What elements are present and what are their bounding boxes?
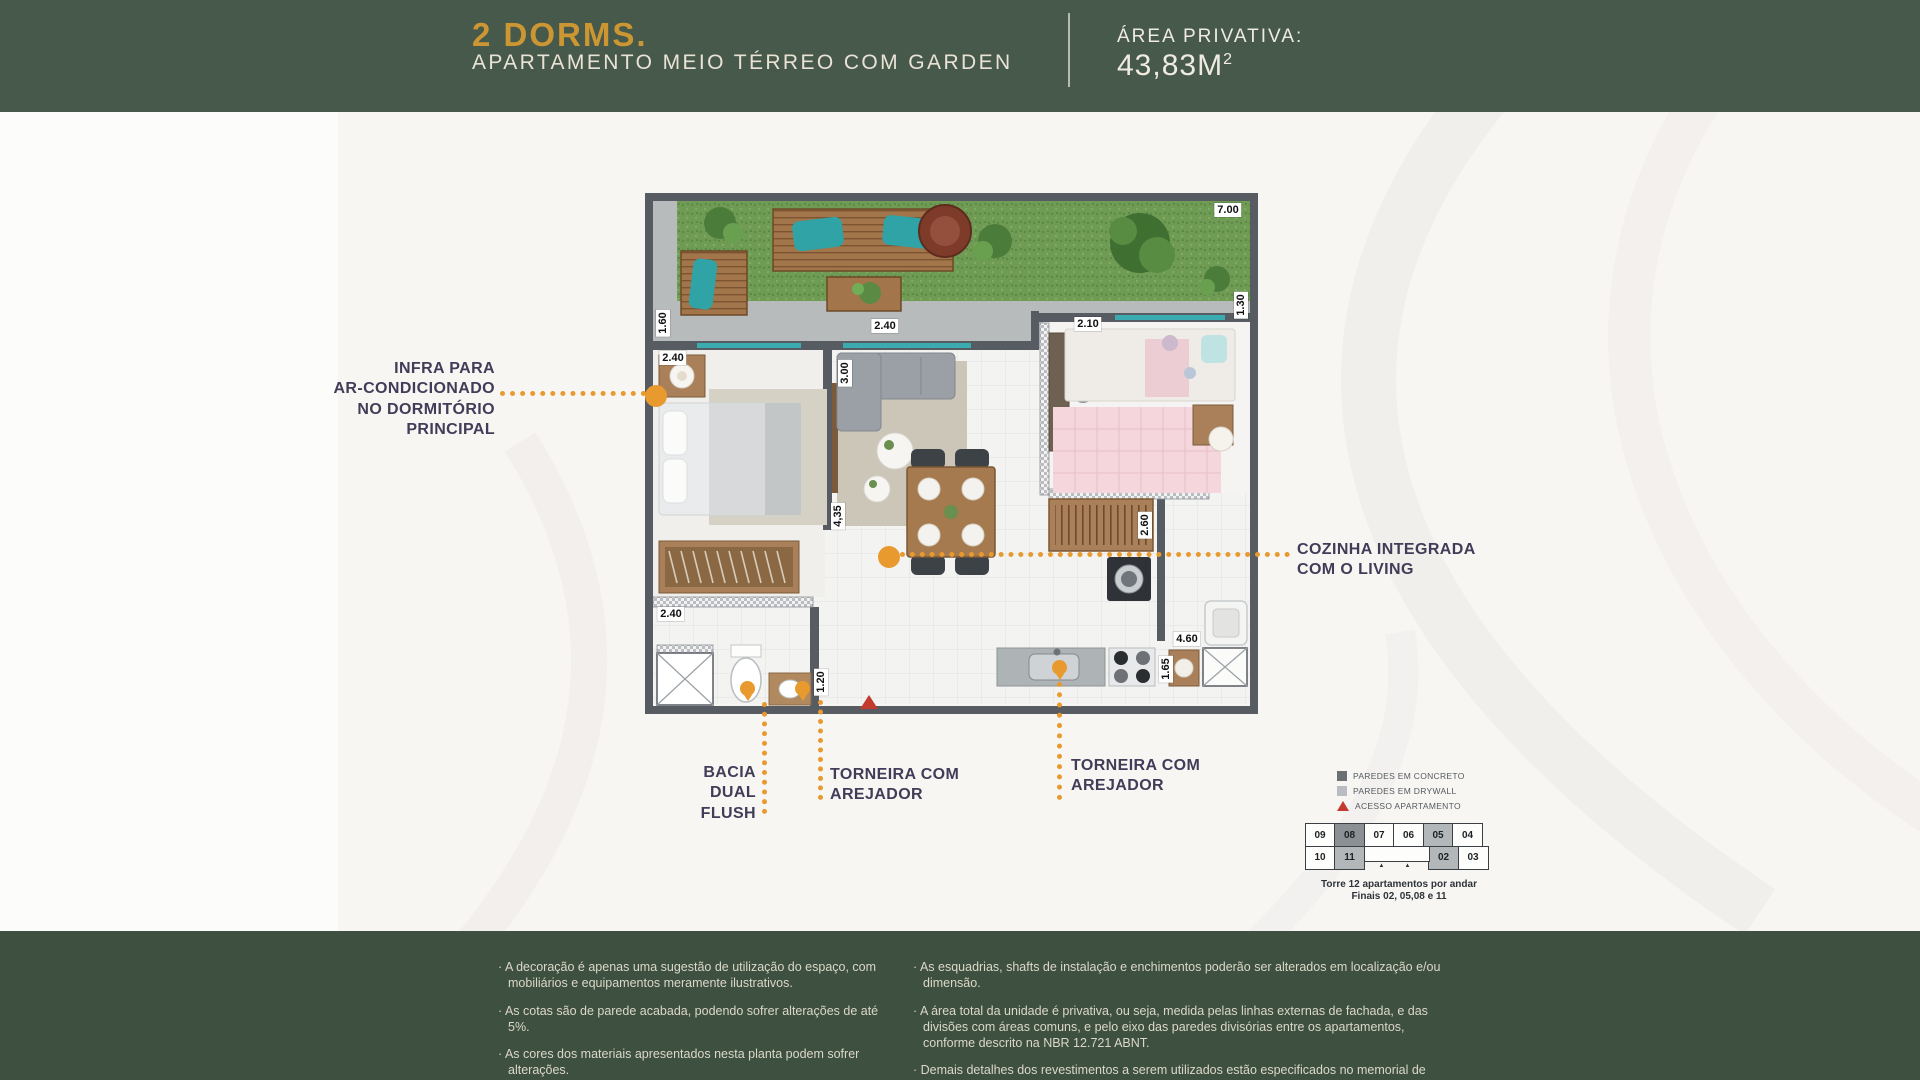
infra-dot [645,385,667,407]
keyplan-unit-07: 07 [1364,823,1395,847]
area-superscript: 2 [1223,51,1233,68]
bacia-pin [740,681,755,696]
callout-cozinha-integrada: COZINHA INTEGRADA COM O LIVING [1297,540,1476,581]
keyplan-unit-04: 04 [1452,823,1483,847]
keyplan-unit-02: 02 [1428,846,1459,870]
torneira-banho-pin [795,681,810,696]
keyplan-unit-10: 10 [1305,846,1336,870]
disclaimers-left-column: A decoração é apenas uma sugestão de uti… [498,959,890,1080]
keyplan-caption: Torre 12 apartamentos por andar Finais 0… [1306,879,1492,904]
drywall-swatch-icon [1337,786,1347,796]
legend-item: ACESSO APARTAMENTO [1337,798,1465,813]
infra-dotted-line [500,391,646,396]
callout-line: PRINCIPAL [285,420,495,440]
callout-line: COZINHA INTEGRADA [1297,540,1476,560]
callout-torneira-arejador-cozinha: TORNEIRA COM AREJADOR [1071,756,1200,797]
keyplan-access-triangle-icon: ▲ [1379,863,1385,869]
keyplan-caption-line1: Torre 12 apartamentos por andar [1306,879,1492,892]
private-area-label: ÁREA PRIVATIVA: [1117,26,1303,48]
legend-label: PAREDES EM DRYWALL [1353,786,1457,796]
disclaimers-right-column: As esquadrias, shafts de instalação e en… [913,959,1458,1080]
floorplan-graphic [645,193,1258,714]
wardrobe [659,541,799,593]
keyplan-caption-line2: Finais 02, 05,08 e 11 [1306,891,1492,904]
callout-line: TORNEIRA COM [830,765,959,785]
left-white-panel [0,112,338,931]
disclaimer-note: A decoração é apenas uma sugestão de uti… [498,959,890,992]
header-band: 2 DORMS. APARTAMENTO MEIO TÉRREO COM GAR… [0,0,1920,112]
callout-line: AREJADOR [1071,776,1200,796]
keyplan-bottom-row: 1011▲▲0203 [1306,847,1492,870]
concrete-swatch-icon [1337,771,1347,781]
disclaimer-note: As esquadrias, shafts de instalação e en… [913,959,1458,992]
legend-label: ACESSO APARTAMENTO [1355,801,1461,811]
page-subtitle: APARTAMENTO MEIO TÉRREO COM GARDEN [472,51,1013,75]
disclaimer-note: A área total da unidade é privativa, ou … [913,1003,1458,1052]
callout-line: AR-CONDICIONADO [285,379,495,399]
keyplan: 090807060504 1011▲▲0203 Torre 12 apartam… [1306,823,1492,904]
callout-bacia-dual-flush: BACIA DUAL FLUSH [656,763,756,824]
legend-item: PAREDES EM CONCRETO [1337,768,1465,783]
legend-item: PAREDES EM DRYWALL [1337,783,1465,798]
private-area-value: 43,83M2 [1117,49,1233,83]
keyplan-access-triangle-icon: ▲ [1405,863,1411,869]
callout-line: COM O LIVING [1297,560,1476,580]
slide: 2 DORMS. APARTAMENTO MEIO TÉRREO COM GAR… [0,0,1920,1080]
keyplan-unit-08: 08 [1334,823,1365,847]
callout-line: FLUSH [656,804,756,824]
callout-line: TORNEIRA COM [1071,756,1200,776]
callout-line: BACIA [656,763,756,783]
floorplan: 1.602.407.001.302.402.103.004,352.602.40… [645,193,1258,714]
cozinha-dot [878,546,900,568]
area-number: 43,83M [1117,49,1223,82]
bacia-dotted-line [762,702,767,814]
callout-line: AREJADOR [830,785,959,805]
torneira-cozinha-dotted-line [1057,682,1062,800]
page-title: 2 DORMS. [472,16,648,54]
keyplan-top-row: 090807060504 [1306,823,1492,847]
torneira-banho-dotted-line [818,700,823,800]
keyplan-unit-11: 11 [1334,846,1365,870]
footer-band: A decoração é apenas uma sugestão de uti… [0,931,1920,1080]
kids-bedroom [1049,329,1235,493]
cozinha-dotted-line [900,552,1290,557]
keyplan-unit-05: 05 [1423,823,1454,847]
keyplan-unit-09: 09 [1305,823,1336,847]
header-divider [1068,13,1070,87]
torneira-cozinha-pin [1052,660,1067,675]
legend: PAREDES EM CONCRETOPAREDES EM DRYWALLACE… [1337,768,1465,813]
disclaimer-note: As cotas são de parede acabada, podendo … [498,1003,890,1036]
access-swatch-icon [1337,801,1349,811]
callout-torneira-arejador-banho: TORNEIRA COM AREJADOR [830,765,959,806]
keyplan-unit-06: 06 [1393,823,1424,847]
disclaimer-note: Demais detalhes dos revestimentos a sere… [913,1062,1458,1080]
callout-infra-ar-condicionado: INFRA PARA AR-CONDICIONADO NO DORMITÓRIO… [285,359,495,441]
callout-line: DUAL [656,783,756,803]
callout-line: INFRA PARA [285,359,495,379]
keyplan-corridor: ▲▲ [1364,846,1430,862]
disclaimer-note: As cores dos materiais apresentados nest… [498,1046,890,1079]
legend-label: PAREDES EM CONCRETO [1353,771,1465,781]
callout-line: NO DORMITÓRIO [285,400,495,420]
keyplan-unit-03: 03 [1458,846,1489,870]
